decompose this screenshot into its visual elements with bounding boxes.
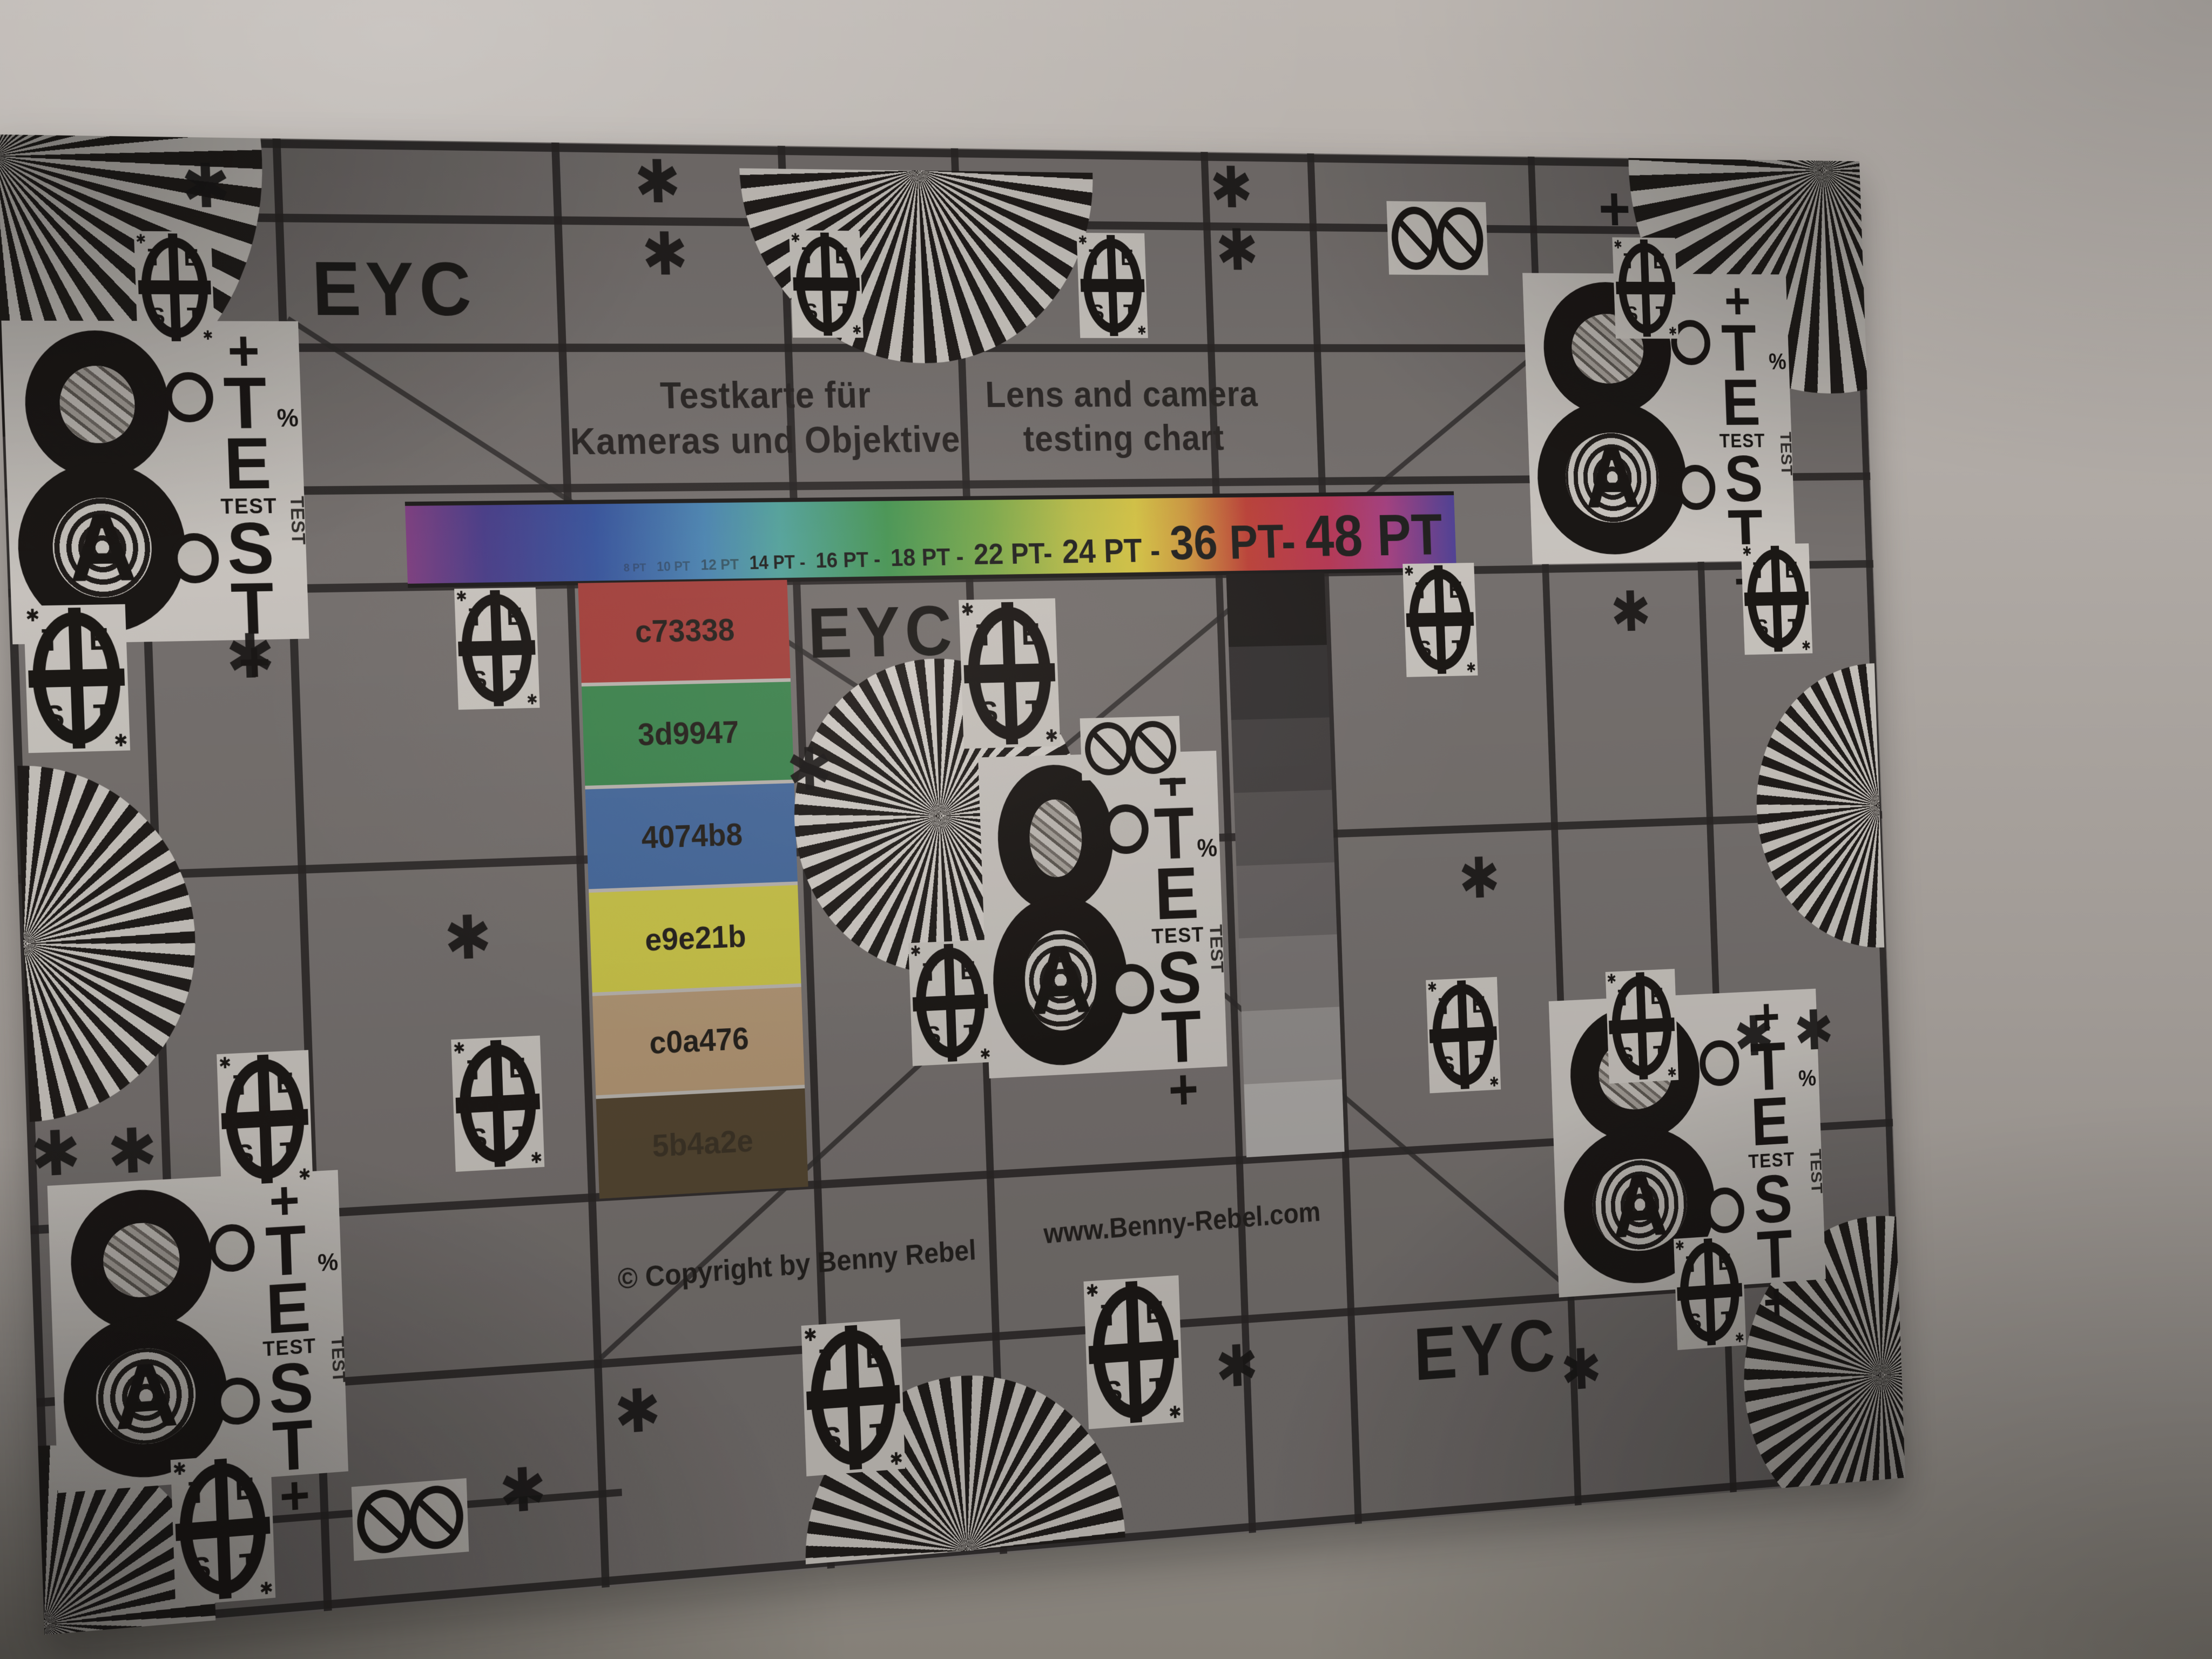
percent-mark: %	[1197, 833, 1218, 863]
asterisk-icon: ✱	[1404, 563, 1414, 578]
badge-letter: S	[925, 1020, 941, 1050]
asterisk-icon: ✱	[530, 1149, 543, 1168]
test-circle-badge: ✱ ✱ T E S T	[170, 1452, 275, 1606]
swatch-hex-label: 5b4a2e	[652, 1122, 754, 1164]
badge-letter: S	[470, 665, 488, 694]
asterisk-icon: ✱	[1168, 1402, 1182, 1423]
asterisk-icon: ✱	[633, 152, 682, 212]
cross-horizontal-bar	[1744, 591, 1809, 606]
badge-letter: E	[834, 244, 849, 269]
test-circle-badge: ✱ ✱ T E S T	[1083, 1275, 1183, 1429]
asterisk-icon: ✱	[225, 626, 276, 688]
detail-pattern	[1028, 799, 1083, 878]
figure-eight-test-panel: A + T E TEST S T + % TEST	[48, 1170, 348, 1493]
test-circle-badge: ✱ ✱ T E S T	[801, 1319, 906, 1476]
side-test-word: TEST	[286, 496, 309, 545]
eight-top-ring	[68, 1186, 213, 1335]
badge-letter: S	[1688, 1308, 1702, 1336]
badge-letter: T	[1438, 992, 1452, 1020]
cross-horizontal-bar	[1080, 279, 1144, 292]
badge-letter: T	[147, 245, 162, 272]
swatch-tan: c0a476	[592, 987, 805, 1095]
cross-horizontal-bar	[964, 663, 1055, 683]
cross-horizontal-bar	[793, 278, 860, 291]
swatch-green: 3d9947	[582, 682, 794, 786]
swatch-hex-label: 3d9947	[637, 714, 739, 753]
title-english-line2: testing chart	[964, 416, 1282, 462]
badge-letter: T	[1685, 1250, 1699, 1278]
badge-letter: T	[279, 1136, 296, 1169]
asterisk-icon: ✱	[456, 588, 468, 604]
asterisk-icon: ✱	[1209, 159, 1254, 217]
badge-letter: S	[979, 694, 999, 730]
badge-letter: T	[1623, 249, 1635, 274]
badge-letter: T	[1101, 1297, 1119, 1334]
asterisk-icon: ✱	[1215, 1337, 1259, 1397]
swatch-hex-label: c0a476	[649, 1020, 749, 1062]
asterisk-icon: ✱	[1802, 638, 1811, 653]
concentric-rings: A	[51, 497, 153, 598]
swatch-hex-label: c73338	[635, 612, 735, 650]
vertical-test-word: + T E TEST S T +	[1136, 757, 1217, 1061]
test-letter: E	[265, 1278, 312, 1338]
badge-letter: S	[235, 1138, 254, 1172]
swatch-brown: 5b4a2e	[596, 1089, 808, 1199]
swatch-hex-label: 4074b8	[641, 816, 743, 856]
pt-label: 36 PT-	[1169, 520, 1297, 565]
cross-horizontal-bar	[138, 280, 211, 294]
pt-label: 14 PT -	[749, 554, 806, 571]
badge-letter: T	[188, 1475, 207, 1512]
asterisk-icon: ✱	[1735, 1330, 1744, 1346]
ring-right	[408, 1483, 464, 1551]
asterisk-icon: ✱	[803, 1325, 817, 1346]
asterisk-icon: ✱	[640, 225, 689, 284]
badge-letter: T	[1089, 245, 1102, 271]
badge-letter: S	[1103, 1373, 1123, 1410]
vertical-test-word: + T E TEST S T +	[199, 327, 297, 631]
asterisk-icon: ✱	[1610, 584, 1653, 640]
detail-pattern	[59, 366, 137, 443]
badge-letter: E	[1120, 246, 1134, 271]
swatch-red: c73338	[578, 580, 790, 683]
badge-letter: S	[1755, 614, 1769, 641]
title-english-line1: Lens and camera	[962, 373, 1280, 417]
asterisk-icon: ✱	[136, 231, 146, 247]
grayscale-step	[1239, 934, 1339, 1011]
test-chart-sheet: 8 PT 10 PT 12 PT 14 PT - 16 PT - 18 PT -…	[0, 134, 1905, 1635]
badge-letter: T	[1653, 1040, 1666, 1068]
swatch-blue: 4074b8	[585, 784, 798, 889]
asterisk-icon: ✱	[1667, 1065, 1677, 1081]
side-test-word: TEST	[1806, 1148, 1825, 1193]
asterisk-icon: ✱	[203, 327, 213, 343]
asterisk-icon: ✱	[29, 1122, 82, 1187]
asterisk-icon: ✱	[453, 1039, 466, 1058]
asterisk-icon: ✱	[852, 322, 862, 338]
badge-letter: T	[869, 1416, 888, 1454]
pt-label: 10 PT	[657, 560, 691, 572]
badge-letter: T	[41, 623, 60, 658]
badge-letter: T	[1655, 302, 1667, 327]
asterisk-icon: ✱	[1137, 323, 1147, 338]
badge-letter: E	[1021, 616, 1041, 652]
a-letter: A	[1583, 428, 1641, 528]
test-circle-badge: ✱ ✱ T E S T	[451, 1035, 544, 1171]
badge-letter: T	[1753, 557, 1766, 584]
badge-letter: T	[963, 1018, 978, 1049]
badge-letter: T	[467, 1054, 484, 1087]
eight-bottom-ring: A	[990, 893, 1130, 1068]
asterisk-icon: ✱	[1489, 1074, 1499, 1090]
test-circle-badge: ✱ ✱ T E S T	[1076, 233, 1148, 338]
badge-letter: T	[1025, 693, 1043, 729]
test-circle-badge: ✱ ✱ T E S T	[1741, 543, 1812, 655]
badge-letter: T	[976, 617, 995, 653]
test-circle-badge: ✱ ✱ T E S T	[1605, 969, 1678, 1084]
plus-icon: +	[279, 1473, 311, 1519]
copyright-text: © Copyright by Benny Rebel	[599, 1232, 994, 1297]
badge-letter: T	[512, 1120, 529, 1153]
percent-mark: %	[1798, 1064, 1817, 1092]
badge-letter: T	[1721, 1306, 1734, 1333]
eyc-label-top: EYC	[311, 245, 477, 333]
badge-letter: E	[1650, 982, 1664, 1010]
asterisk-icon: ✱	[180, 156, 232, 217]
badge-letter: E	[506, 602, 523, 631]
pt-label: 12 PT	[700, 557, 739, 572]
pt-label: 18 PT -	[890, 546, 964, 569]
badge-letter: S	[1440, 1051, 1455, 1079]
asterisk-icon: ✱	[259, 1578, 273, 1599]
asterisk-icon: ✱	[889, 1448, 903, 1470]
grayscale-step	[1236, 862, 1337, 939]
side-test-word: TEST	[327, 1336, 348, 1383]
a-letter: A	[112, 1341, 180, 1452]
asterisk-icon: ✱	[172, 1459, 187, 1480]
badge-letter: S	[1417, 635, 1432, 663]
badge-letter: S	[821, 1419, 842, 1457]
badge-letter: T	[187, 304, 201, 330]
test-circle-badge: ✱ ✱ T E S T	[1674, 1234, 1746, 1350]
cross-horizontal-bar	[1616, 282, 1675, 294]
pt-label: 22 PT-	[973, 541, 1053, 568]
test-circle-badge: ✱ ✱ T E S T	[1612, 237, 1678, 339]
badge-letter: E	[1144, 1294, 1164, 1331]
badge-letter: E	[89, 622, 110, 657]
badge-letter: T	[1788, 613, 1800, 640]
a-letter: A	[1610, 1152, 1669, 1258]
badge-letter: S	[44, 699, 65, 735]
asterisk-icon: ✱	[1560, 1341, 1602, 1400]
grayscale-step	[1242, 1007, 1342, 1084]
percent-mark: %	[276, 404, 299, 433]
figure-eight-test-panel: A + T E TEST S T + % TEST	[978, 751, 1227, 1078]
percent-mark: %	[1768, 349, 1786, 375]
asterisk-icon: ✱	[1078, 233, 1088, 248]
ring-left	[356, 1488, 413, 1556]
badge-letter: T	[1617, 984, 1631, 1011]
plus-icon: +	[1597, 177, 1631, 240]
asterisk-icon: ✱	[791, 230, 801, 246]
eyc-label-bottom: EYC	[1412, 1303, 1561, 1398]
asterisk-icon: ✱	[1427, 980, 1437, 995]
badge-letter: T	[239, 1546, 258, 1583]
test-circle-badge: ✱ ✱ T E S T	[1402, 563, 1478, 677]
cross-horizontal-bar	[1406, 612, 1474, 626]
asterisk-icon: ✱	[1466, 660, 1476, 675]
figure-eight-test-panel: A + T E TEST S T + % TEST	[1, 321, 309, 645]
badge-letter: S	[150, 303, 166, 330]
grayscale-step	[1226, 572, 1326, 647]
cross-horizontal-bar	[29, 668, 125, 687]
badge-letter: T	[510, 664, 525, 694]
badge-letter: T	[1149, 1370, 1167, 1407]
test-letter: E	[1750, 1092, 1791, 1150]
vertical-test-word: + T E TEST S T +	[240, 1177, 336, 1469]
asterisk-icon: ✱	[1044, 726, 1058, 746]
badge-letter: S	[1620, 1042, 1634, 1069]
swatch-hex-label: e9e21b	[644, 918, 746, 959]
asterisk-icon: ✱	[1675, 1238, 1684, 1253]
asterisk-icon: ✱	[498, 1459, 548, 1523]
asterisk-icon: ✱	[1607, 971, 1616, 987]
asterisk-icon: ✱	[113, 730, 128, 750]
siemens-star-fan	[17, 761, 201, 1122]
badge-letter: E	[234, 1471, 255, 1508]
grayscale-step-wedge	[1226, 572, 1344, 1157]
a-letter: A	[66, 492, 138, 604]
detail-pattern	[102, 1221, 181, 1300]
test-circle-badge: ✱ ✱ T E S T	[789, 230, 864, 338]
asterisk-icon: ✱	[786, 740, 833, 800]
vertical-test-word: + T E TEST S T +	[1697, 280, 1785, 553]
badge-letter: S	[804, 299, 818, 325]
swatch-yellow: e9e21b	[589, 885, 801, 993]
concentric-rings: A	[95, 1345, 198, 1447]
eight-top-ring	[995, 763, 1116, 914]
asterisk-icon: ✱	[1733, 1008, 1775, 1065]
badge-letter: T	[922, 957, 938, 988]
side-test-word: TEST	[1777, 431, 1796, 475]
title-german: Testkarte für Kameras und Objektive	[563, 373, 966, 465]
test-circle-badge: ✱ ✱ T E S T	[959, 598, 1060, 749]
asterisk-icon: ✱	[1668, 324, 1677, 339]
grayscale-step	[1231, 717, 1332, 793]
ring-right	[1435, 207, 1484, 270]
test-circle-badge: ✱ ✱ T E S T	[217, 1050, 313, 1189]
asterisk-icon: ✱	[527, 691, 538, 707]
pt-label: 48 PT	[1304, 509, 1443, 563]
test-circle-badge: ✱ ✱ T E S T	[454, 587, 539, 709]
asterisk-icon: ✱	[980, 1046, 991, 1063]
badge-letter: T	[468, 603, 484, 632]
pt-label: 16 PT -	[815, 550, 881, 570]
a-letter: A	[1027, 925, 1094, 1037]
badge-letter: E	[1448, 576, 1464, 604]
color-swatch-column: c73338 3d9947 4074b8 e9e21b c0a476 5b4a2…	[578, 580, 808, 1199]
asterisk-icon: ✱	[1085, 1280, 1099, 1301]
website-text: www.Benny-Rebel.com	[1019, 1193, 1344, 1252]
asterisk-icon: ✱	[961, 599, 975, 620]
plus-icon: +	[1168, 1067, 1199, 1114]
asterisk-icon: ✱	[1458, 850, 1501, 908]
badge-letter: E	[865, 1338, 885, 1376]
eight-bottom-ring: A	[1535, 401, 1689, 556]
pt-label: 24 PT -	[1062, 535, 1161, 567]
asterisk-icon: ✱	[1793, 1003, 1835, 1060]
badge-letter: S	[469, 1122, 488, 1155]
badge-letter: S	[1625, 302, 1638, 327]
percent-mark: %	[317, 1249, 339, 1277]
badge-letter: T	[1123, 300, 1136, 325]
test-letter: E	[223, 433, 272, 494]
eight-top-ring	[23, 331, 171, 479]
test-circle-badge: ✱ ✱ T E S T	[23, 604, 130, 753]
badge-letter: E	[1471, 991, 1486, 1019]
badge-letter: S	[1090, 300, 1104, 325]
asterisk-icon: ✱	[910, 943, 921, 960]
siemens-star-fan	[1752, 663, 1884, 953]
ring-left	[1391, 206, 1440, 270]
badge-letter: E	[1653, 249, 1665, 274]
badge-letter: E	[960, 955, 976, 986]
grayscale-step	[1229, 645, 1329, 720]
grayscale-step	[1244, 1080, 1344, 1158]
badge-letter: E	[508, 1052, 527, 1085]
grayscale-step	[1234, 790, 1334, 866]
badge-letter: E	[1717, 1248, 1732, 1276]
badge-letter: E	[183, 245, 199, 272]
badge-letter: T	[838, 299, 851, 325]
badge-letter: T	[801, 243, 815, 268]
test-letter: E	[1721, 375, 1761, 429]
sideways-eight-badge	[1080, 716, 1182, 781]
test-letter: E	[1154, 863, 1199, 925]
plus-icon: +	[1763, 1281, 1791, 1325]
concentric-rings: A	[1023, 929, 1098, 1032]
badge-letter: T	[1451, 635, 1465, 662]
badge-letter: T	[1474, 1049, 1488, 1077]
cross-horizontal-bar	[458, 640, 536, 656]
test-circle-badge: ✱ ✱ T E S T	[1426, 977, 1501, 1094]
badge-letter: S	[191, 1550, 212, 1587]
test-circle-badge: ✱ ✱ T E S T	[908, 940, 993, 1065]
badge-letter: E	[275, 1067, 294, 1100]
badge-letter: T	[1415, 577, 1429, 604]
badge-letter: T	[93, 698, 112, 733]
asterisk-icon: ✱	[298, 1165, 311, 1184]
badge-letter: E	[1784, 557, 1798, 584]
test-circle-badge: ✱ ✱ T E S T	[134, 231, 215, 343]
asterisk-icon: ✱	[219, 1054, 232, 1073]
sideways-eight-badge	[352, 1478, 469, 1561]
asterisk-icon: ✱	[1742, 544, 1752, 559]
asterisk-icon: ✱	[443, 907, 493, 969]
badge-letter: T	[233, 1069, 251, 1102]
asterisk-icon: ✱	[1215, 222, 1259, 279]
title-german-line1: Testkarte für	[563, 373, 964, 420]
concentric-rings: A	[1564, 433, 1660, 523]
ring-left	[1084, 721, 1132, 776]
side-test-word: TEST	[1205, 924, 1226, 973]
pt-label: 8 PT	[624, 563, 646, 574]
asterisk-icon: ✱	[25, 605, 40, 625]
title-english: Lens and camera testing chart	[962, 373, 1282, 462]
badge-letter: T	[819, 1341, 838, 1379]
asterisk-icon: ✱	[613, 1380, 662, 1444]
title-german-line2: Kameras und Objektive	[565, 417, 966, 465]
asterisk-icon: ✱	[106, 1120, 158, 1184]
ring-right	[1129, 720, 1177, 775]
sideways-eight-badge	[1386, 201, 1488, 275]
